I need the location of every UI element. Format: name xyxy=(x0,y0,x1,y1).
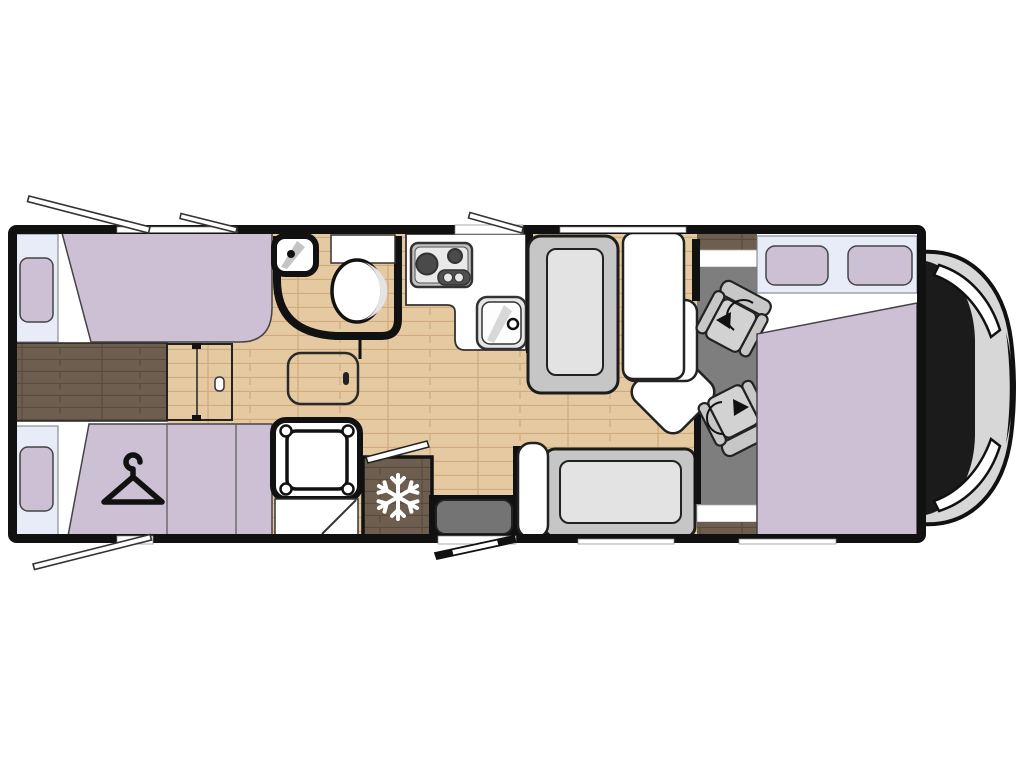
stove-burner-small xyxy=(448,249,462,263)
pillow-top-left xyxy=(20,258,53,322)
entry-step xyxy=(429,495,519,538)
dinette-armrest xyxy=(518,443,548,538)
cab-white-strip-top xyxy=(697,250,757,267)
window-bottom-dinette xyxy=(578,539,674,544)
floorplan-svg xyxy=(0,0,1024,768)
window-top-dinette xyxy=(560,227,686,233)
shower-corner-2 xyxy=(343,426,354,437)
stove-knob-right xyxy=(455,273,464,282)
cab-white-strip-bottom xyxy=(697,505,757,522)
partition-door xyxy=(167,343,232,421)
cab-wood-strip-top xyxy=(697,233,757,250)
pillow-bottom-left xyxy=(20,447,53,511)
shower-corner-4 xyxy=(343,484,354,495)
window-bottom-bed xyxy=(739,539,836,544)
bathroom-faucet xyxy=(287,250,295,258)
shower xyxy=(273,420,360,536)
cab-partition-top xyxy=(692,239,700,301)
fridge xyxy=(363,441,432,536)
motorhome-floorplan xyxy=(0,0,1024,768)
stove-knob-left xyxy=(444,273,453,282)
shower-entry xyxy=(275,499,358,536)
pillow-front-right xyxy=(848,246,912,285)
bed-bottom-duvet xyxy=(68,424,272,536)
rear-aisle-dark-wood xyxy=(12,343,167,421)
dinette-bench-front-cushion xyxy=(547,249,603,375)
shower-corner-3 xyxy=(281,484,292,495)
partition-door-hinge-top xyxy=(192,343,201,349)
pillow-front-left xyxy=(766,246,828,285)
partition-door-handle xyxy=(215,377,224,391)
entry-step-tread xyxy=(436,500,512,534)
bed-top-duvet xyxy=(62,233,272,342)
drop-down-bed-duvet xyxy=(757,303,917,537)
drop-down-bed xyxy=(757,236,917,537)
cab-front xyxy=(920,252,1014,525)
floor-hatch-handle xyxy=(343,372,349,385)
toilet-cistern xyxy=(331,235,395,263)
table-upper xyxy=(623,233,684,379)
shower-tray xyxy=(287,431,347,489)
kitchen-faucet xyxy=(508,319,518,329)
stove-burner-large xyxy=(417,254,438,275)
partition-door-hinge-bottom xyxy=(192,415,201,421)
shower-corner-1 xyxy=(281,426,292,437)
dinette-bench-rear-cushion xyxy=(560,461,681,523)
